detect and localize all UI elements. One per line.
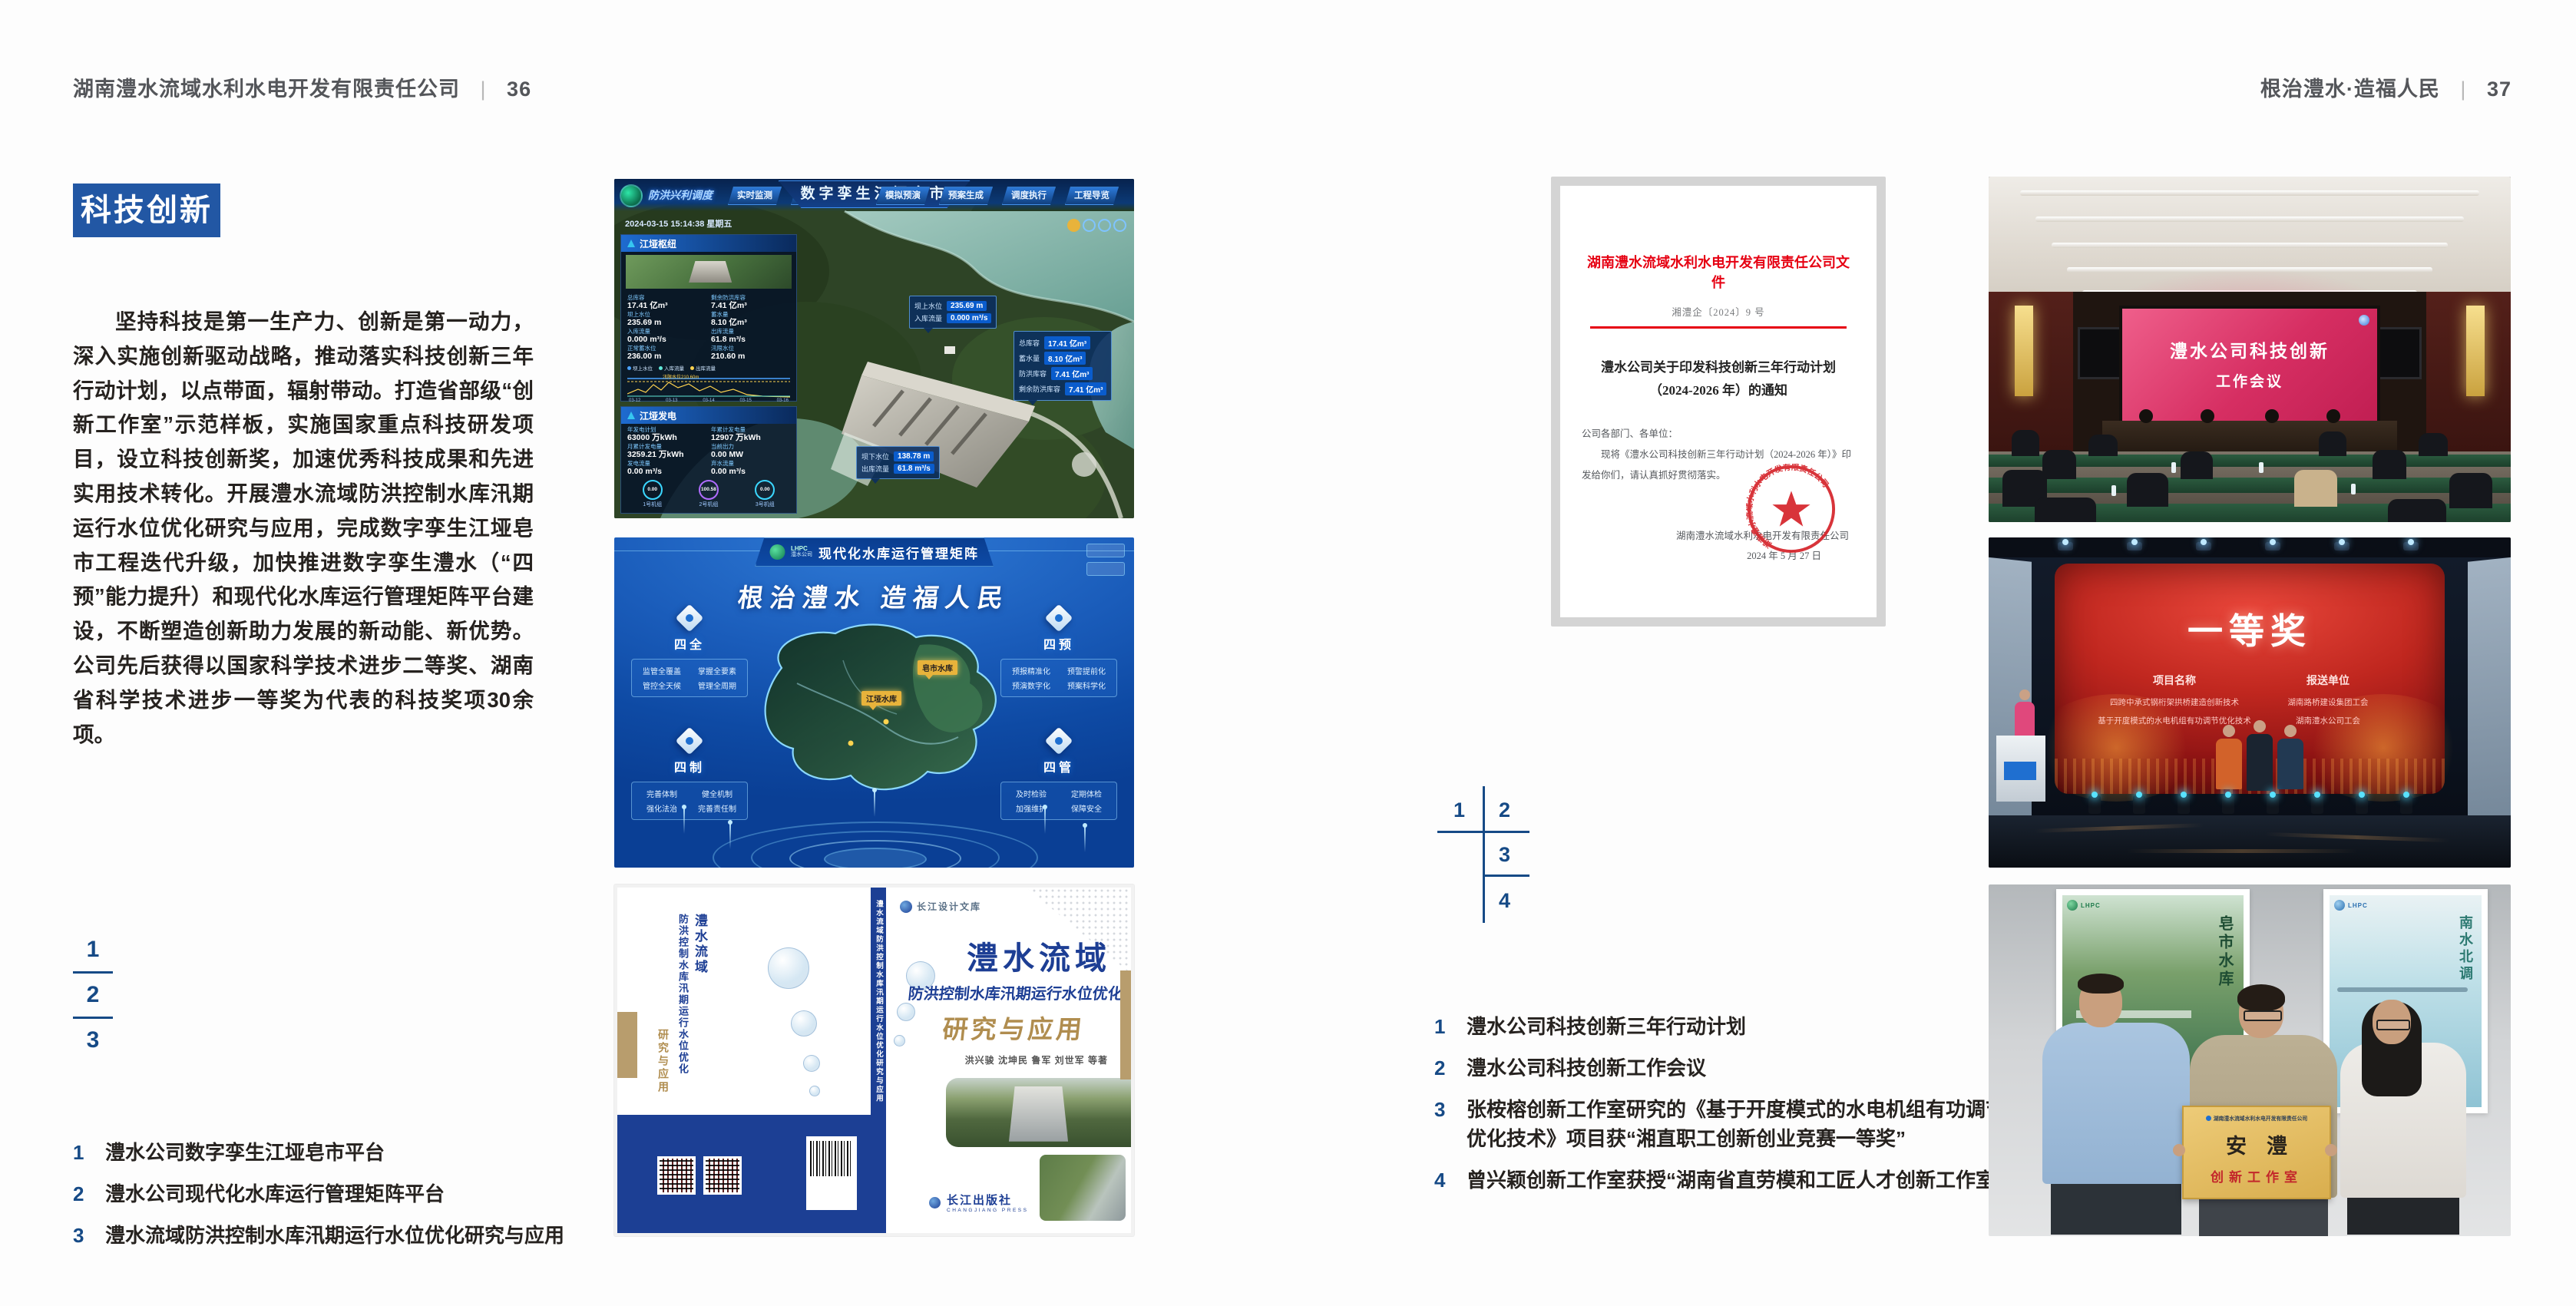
water-droplet	[894, 1035, 905, 1046]
stat-value: 17.41 亿m³	[627, 301, 706, 310]
book-bottom-band	[617, 1115, 886, 1233]
publisher-logo-icon	[929, 1197, 941, 1208]
awardee-orange	[2216, 725, 2242, 789]
spine-title: 澧水流域防洪控制水库汛期运行水位优化研究与应用	[873, 900, 884, 1192]
audience-person	[2449, 473, 2492, 508]
wall-lamp	[2466, 306, 2485, 396]
publisher-name: 长江出版社	[947, 1192, 1028, 1208]
caption-text: 澧水公司科技创新工作会议	[1467, 1053, 2009, 1083]
caption-text: 澧水公司数字孪生江垭皂市平台	[105, 1138, 572, 1167]
user-icon	[1067, 219, 1080, 232]
trousers	[2199, 1198, 2328, 1236]
spotlight	[2127, 542, 2142, 551]
caption-number: 4	[1434, 1165, 1467, 1195]
lhpc-logo-icon	[769, 544, 785, 560]
spotlight	[2265, 542, 2280, 551]
stage-side-panel	[2468, 556, 2511, 820]
poster-logo-text: LHPC	[2081, 902, 2101, 909]
bridge-graphic	[2337, 987, 2468, 992]
projection-screen: 澧水公司科技创新 工作会议	[2119, 306, 2380, 428]
stat-value: 7.41 亿m³	[711, 301, 790, 310]
panel-title: 江垭发电	[640, 409, 676, 422]
water-level-chart: 汛限水位210.60m	[627, 372, 790, 398]
caption-row: 4曾兴颖创新工作室获授“湖南省直劳模和工匠人才创新工作室”	[1434, 1165, 2009, 1195]
group-icon	[1045, 727, 1073, 755]
document-salutation: 公司各部门、各单位：	[1582, 424, 1855, 445]
page-header-left: 湖南澧水流域水利水电开发有限责任公司 | 36	[73, 72, 531, 102]
stage-light	[2400, 795, 2412, 814]
unit-value: 0.00	[643, 480, 663, 500]
document-title: 澧水公司关于印发科技创新三年行动计划（2024-2026 年）的通知	[1592, 356, 1845, 402]
award-unit-column: 报送单位 湖南路桥建设集团工会 湖南澧水公司工会	[2251, 673, 2405, 734]
screen-title-line1: 澧水公司科技创新	[2122, 336, 2377, 362]
spotlight	[2403, 542, 2419, 551]
brochure-spread: 湖南澧水流域水利水电开发有限责任公司 | 36 根治澧水·造福人民 | 37 科…	[0, 0, 2576, 1306]
tan-accent	[1120, 970, 1131, 1080]
book-spine: 澧水流域防洪控制水库汛期运行水位优化研究与应用	[871, 888, 886, 1233]
stage-light	[2311, 795, 2323, 814]
chart-x-axis: 03-12 03-13 03-14 03-15 03-16	[629, 398, 789, 403]
stat-value: 235.69 m	[627, 318, 706, 327]
wall-lamp	[2015, 306, 2033, 396]
spotlight	[2196, 542, 2211, 551]
audience-person	[2388, 499, 2446, 522]
audience-person	[2035, 498, 2096, 522]
group-icon	[676, 604, 704, 633]
caption-text: 澧水公司科技创新三年行动计划	[1467, 1012, 2009, 1041]
chart-legend: 坝上水位 入库流量 出库流量	[627, 364, 790, 372]
caption-number: 2	[1434, 1053, 1467, 1083]
stage-floor	[1989, 815, 2511, 868]
stat-label: 剩余防洪库容	[711, 294, 790, 301]
unit-value: 0.00	[755, 480, 775, 500]
stat-value: 61.8 m³/s	[711, 335, 790, 344]
figure-matrix-platform-screenshot: LHPC澧水公司 现代化水库运行管理矩阵 根治澧水 造福人民 皂市水库 江垭水库…	[614, 537, 1134, 868]
figure-index-left: 1 2 3	[73, 938, 113, 1062]
stage-light	[2222, 795, 2234, 814]
group-label: 四管	[1000, 757, 1117, 775]
caption-text: 澧水流域防洪控制水库汛期运行水位优化研究与应用	[105, 1221, 572, 1250]
caption-row: 1澧水公司数字孪生江垭皂市平台	[73, 1138, 572, 1167]
lhpc-logo-icon	[2067, 900, 2078, 911]
stat-label: 年发电计划	[627, 426, 706, 433]
generator-units: 0.001号机组 100.582号机组 0.003号机组	[621, 478, 796, 508]
caption-row: 3澧水流域防洪控制水库汛期运行水位优化研究与应用	[73, 1221, 572, 1250]
mode-label: 防洪兴利调度	[648, 187, 713, 203]
stat-value: 0.00 m³/s	[711, 467, 790, 476]
stage-light	[2178, 795, 2190, 814]
water-droplet	[803, 1055, 820, 1072]
map-tag-reservoir: 江垭水库	[861, 691, 901, 706]
unit-value: 100.58	[699, 480, 719, 500]
stat-label: 发电流量	[627, 460, 706, 467]
stat-value: 236.00 m	[627, 352, 706, 361]
book-title-sub: 防洪控制水库汛期运行水位优化	[907, 981, 1124, 1003]
index-divider	[73, 971, 113, 974]
stat-value: 63000 万kWh	[627, 433, 706, 442]
stage-light	[2133, 795, 2145, 814]
caption-text: 澧水公司现代化水库运行管理矩阵平台	[105, 1179, 572, 1208]
lhpc-logo-icon	[2334, 900, 2345, 911]
sail-icon	[627, 240, 635, 247]
stat-value: 0.000 m³/s	[627, 335, 706, 344]
caption-text: 张桉榕创新工作室研究的《基于开度模式的水电机组有功调节优化技术》项目获“湘直职工…	[1467, 1095, 2009, 1153]
audience-person	[2319, 431, 2346, 456]
water-droplet	[791, 1010, 817, 1037]
screen-title-line2: 工作会议	[2122, 370, 2377, 391]
figure-award-ceremony-photo: 一等奖 项目名称 四跨中承式钢桁架拱桥建造创新技术 基于开度模式的水电机组有功调…	[1989, 537, 2511, 868]
red-seal: 湖南澧水流域水利水电开发有限责任公司	[1746, 464, 1837, 554]
matrix-group-siyu: 四预 预报精准化预警提前化 预演数字化预案科学化	[1000, 608, 1117, 697]
spotlight	[2334, 542, 2349, 551]
qr-code	[657, 1156, 696, 1195]
spotlight	[2058, 542, 2073, 551]
plaque-logo-icon	[2206, 1116, 2211, 1121]
layers-icon	[1083, 219, 1096, 232]
figure-official-document: 湖南澧水流域水利水电开发有限责任公司文件 湘澧企〔2024〕9 号 澧水公司关于…	[1551, 177, 1886, 627]
figure-meeting-photo: 澧水公司科技创新 工作会议	[1989, 177, 2511, 522]
audience-person	[2042, 450, 2076, 479]
caption-text: 曾兴颖创新工作室获授“湖南省直劳模和工匠人才创新工作室”	[1467, 1165, 2009, 1195]
matrix-group-siquan: 四全 监管全覆盖掌握全要素 管控全天候管理全周期	[631, 608, 748, 697]
person-left	[2042, 978, 2190, 1235]
stat-label: 出库流量	[711, 328, 790, 335]
rostrum-desk	[2102, 421, 2397, 453]
qr-code	[703, 1156, 742, 1195]
platform-logo-icon	[620, 184, 643, 207]
stat-label: 正常蓄水位	[627, 345, 706, 352]
figure-index-number: 3	[1499, 843, 1510, 867]
caption-number: 3	[1434, 1095, 1467, 1153]
legend-item: 出库流量	[696, 364, 716, 372]
series-name: 长江设计文库	[917, 900, 981, 913]
dashboard-timestamp: 2024-03-15 15:14:38 星期五	[625, 217, 732, 230]
locate-icon	[1098, 219, 1111, 232]
stat-label: 当前出力	[711, 443, 790, 450]
unit-label: 2号机组	[699, 501, 719, 508]
page-number-right: 37	[2487, 78, 2512, 101]
header-separator: |	[481, 78, 487, 101]
chart-note: 汛限水位210.60m	[663, 373, 699, 380]
group-icon	[676, 727, 704, 755]
caption-row: 1澧水公司科技创新三年行动计划	[1434, 1012, 2009, 1041]
poster-calligraphy: 皂市水库	[2214, 915, 2236, 989]
hand	[2325, 1144, 2337, 1156]
unit-label: 1号机组	[643, 501, 663, 508]
index-divider	[73, 1017, 113, 1019]
dam-photo	[946, 1078, 1131, 1147]
stage-light	[2088, 795, 2101, 814]
logo-subtext: 澧水公司	[791, 552, 812, 558]
company-name: 湖南澧水流域水利水电开发有限责任公司	[73, 78, 460, 101]
section-title: 科技创新	[73, 184, 220, 237]
figure-index-number: 1	[73, 938, 113, 961]
screen-logo-icon	[2359, 315, 2369, 326]
stat-value: 210.60 m	[711, 352, 790, 361]
sail-icon	[627, 412, 635, 419]
figure-index-number: 3	[73, 1029, 113, 1052]
document-number: 湘澧企〔2024〕9 号	[1582, 304, 1855, 319]
book-front-cover: 长江设计文库 澧水流域 防洪控制水库汛期运行水位优化 研究与应用 洪兴骏 沈坤民…	[886, 888, 1131, 1233]
map-callout-capacity: 总库容17.41 亿m³ 蓄水量8.10 亿m³ 防洪库容7.41 亿m³ 剩余…	[1014, 331, 1112, 401]
figure-group-photo: LHPC 皂市水库 LHPC 南水北调	[1989, 884, 2511, 1236]
dam-thumbnail	[626, 255, 792, 289]
barcode	[806, 1136, 857, 1210]
stat-label: 入库流量	[627, 328, 706, 335]
toolbar-button	[1086, 562, 1125, 576]
tab-realtime-monitoring: 实时监测	[728, 187, 782, 205]
figure-index-number: 2	[73, 984, 113, 1007]
panel-title: 江垭枢纽	[640, 237, 676, 250]
dam-photo-small	[1040, 1155, 1126, 1221]
stage-light	[2267, 795, 2279, 814]
captions-left: 1澧水公司数字孪生江垭皂市平台 2澧水公司现代化水库运行管理矩阵平台 3澧水流域…	[73, 1138, 572, 1262]
panel-hub-info: 江垭枢纽 总库容17.41 亿m³ 剩余防洪库容7.41 亿m³ 坝上水位235…	[620, 234, 797, 402]
book-authors: 洪兴骏 沈坤民 鲁军 刘世军 等著	[965, 1053, 1108, 1066]
captions-right: 1澧水公司科技创新三年行动计划 2澧水公司科技创新工作会议 3张桉榕创新工作室研…	[1434, 1012, 2009, 1207]
person-right	[2340, 1000, 2466, 1235]
awardee-navy	[2277, 725, 2303, 789]
award-headline: 一等奖	[2055, 603, 2445, 654]
stat-value: 8.10 亿m³	[711, 318, 790, 327]
audience-person	[2012, 430, 2039, 456]
plaque-studio-name: 安澧	[2184, 1129, 2330, 1159]
stat-value: 3259.21 万kWh	[627, 450, 706, 459]
stat-label: 蓄水量	[711, 311, 790, 318]
figure-index-number: 1	[1453, 798, 1465, 822]
group-icon	[1045, 604, 1073, 633]
stat-label: 总库容	[627, 294, 706, 301]
water-droplet	[768, 947, 809, 989]
settings-icon	[1113, 219, 1126, 232]
trousers	[2347, 1198, 2459, 1235]
stat-value: 12907 万kWh	[711, 433, 790, 442]
poster-logo-text: LHPC	[2348, 902, 2368, 909]
figure-index-number: 2	[1499, 798, 1510, 822]
logo-text: LHPC	[791, 546, 812, 552]
plaque-org-name: 湖南澧水流域水利水电开发有限责任公司	[2214, 1114, 2307, 1122]
stat-label: 汛限水位	[711, 345, 790, 352]
caption-row: 2澧水公司科技创新工作会议	[1434, 1053, 2009, 1083]
tab-project-tour: 工程导览	[1065, 187, 1119, 205]
page-header-right: 根治澧水·造福人民 | 37	[2260, 72, 2512, 102]
matrix-title: 现代化水库运行管理矩阵	[818, 543, 979, 562]
book-title-main: 澧水流域	[967, 932, 1111, 978]
hand	[2173, 1144, 2185, 1156]
matrix-title-bar: LHPC澧水公司 现代化水库运行管理矩阵	[755, 537, 994, 567]
audience-person	[2181, 451, 2213, 479]
trousers	[2051, 1184, 2181, 1235]
legend-item: 入库流量	[664, 364, 684, 372]
stat-value: 0.00 m³/s	[627, 467, 706, 476]
tab-dispatch-execution: 调度执行	[1002, 187, 1056, 205]
group-label: 四预	[1000, 634, 1117, 653]
map-callout-upstream: 坝上水位235.69 m 入库流量0.000 m³/s	[909, 296, 997, 329]
map-callout-downstream: 坝下水位138.78 m 出库流量61.8 m³/s	[856, 446, 940, 479]
audience-person	[2127, 473, 2168, 507]
book-title-gold: 研究与应用	[941, 1009, 1086, 1046]
blue-polo-torso	[2042, 1023, 2190, 1184]
caption-number: 2	[73, 1179, 105, 1208]
figure-index-number: 4	[1499, 889, 1510, 913]
stats-grid: 总库容17.41 亿m³ 剩余防洪库容7.41 亿m³ 坝上水位235.69 m…	[621, 292, 796, 363]
poster-calligraphy: 南水北调	[2455, 915, 2475, 983]
body-paragraph: 坚持科技是第一生产力、创新是第一动力，深入实施创新驱动战略，推动落实科技创新三年…	[73, 305, 534, 752]
water-droplet	[897, 1003, 915, 1021]
group-label: 四全	[631, 634, 748, 653]
index-vline	[1483, 786, 1485, 923]
tab-simulation: 模拟预演	[876, 187, 930, 205]
stat-label: 坝上水位	[627, 311, 706, 318]
legend-item: 坝上水位	[633, 364, 653, 372]
caption-row: 2澧水公司现代化水库运行管理矩阵平台	[73, 1179, 572, 1208]
matrix-group-siguan: 四管 及时检验定期体检 加强维护保障安全	[1000, 731, 1117, 820]
tan-accent	[617, 1012, 637, 1078]
audience-person-beige	[2294, 470, 2337, 507]
stage-light	[2356, 795, 2368, 814]
water-droplet	[809, 1086, 820, 1096]
panel-header: 江垭发电	[621, 407, 796, 424]
unit-label: 3号机组	[755, 501, 775, 508]
ripple	[824, 848, 927, 868]
header-separator: |	[2460, 78, 2466, 101]
figure-book-cover: 澧水流域 防洪控制水库汛期运行水位优化 研究与应用 澧水流域防洪控制水库汛期运行…	[614, 884, 1134, 1236]
stat-label: 月累计发电量	[627, 443, 706, 450]
red-rule	[1590, 326, 1847, 329]
caption-number: 1	[73, 1138, 105, 1167]
series-logo-icon	[900, 901, 912, 913]
tab-plan-generation: 预案生成	[939, 187, 993, 205]
panel-header: 江垭枢纽	[621, 235, 796, 252]
innovation-studio-plaque: 湖南澧水流域水利水电开发有限责任公司 安澧 创新工作室	[2182, 1106, 2331, 1199]
figure-digital-twin-screenshot: 防洪兴利调度 实时监测 洪水预报 防洪预警 数字孪生江垭皂市 模拟预演 预案生成…	[614, 179, 1134, 518]
panel-power-generation: 江垭发电 年发电计划63000 万kWh 年累计发电量12907 万kWh 月累…	[620, 406, 797, 514]
index-hline	[1437, 831, 1529, 833]
page-number-left: 36	[507, 78, 531, 101]
caption-number: 1	[1434, 1012, 1467, 1041]
audience-person	[2373, 450, 2406, 479]
caption-row: 3张桉榕创新工作室研究的《基于开度模式的水电机组有功调节优化技术》项目获“湘直职…	[1434, 1095, 2009, 1153]
stat-value: 0.00 MW	[711, 450, 790, 459]
presenter-suit	[2247, 720, 2273, 791]
stat-label: 弃水流量	[711, 460, 790, 467]
map-tag-reservoir: 皂市水库	[918, 660, 957, 675]
caption-number: 3	[73, 1221, 105, 1250]
slogan-text: 根治澧水·造福人民	[2260, 78, 2440, 101]
podium	[1996, 736, 2045, 802]
index-hline	[1483, 875, 1529, 877]
stat-label: 年累计发电量	[711, 426, 790, 433]
matrix-group-sizhi: 四制 完善体制健全机制 强化法治完善责任制	[631, 731, 748, 820]
audience-person	[2088, 435, 2118, 456]
audience-person	[2419, 433, 2448, 456]
group-label: 四制	[631, 757, 748, 775]
toolbar-button	[1086, 544, 1125, 557]
audience-desk-row	[1989, 478, 2511, 493]
document-red-header: 湖南澧水流域水利水电开发有限责任公司文件	[1582, 252, 1855, 292]
publisher-name-en: CHANGJIANG PRESS	[947, 1208, 1028, 1213]
plaque-subtitle: 创新工作室	[2184, 1166, 2330, 1185]
